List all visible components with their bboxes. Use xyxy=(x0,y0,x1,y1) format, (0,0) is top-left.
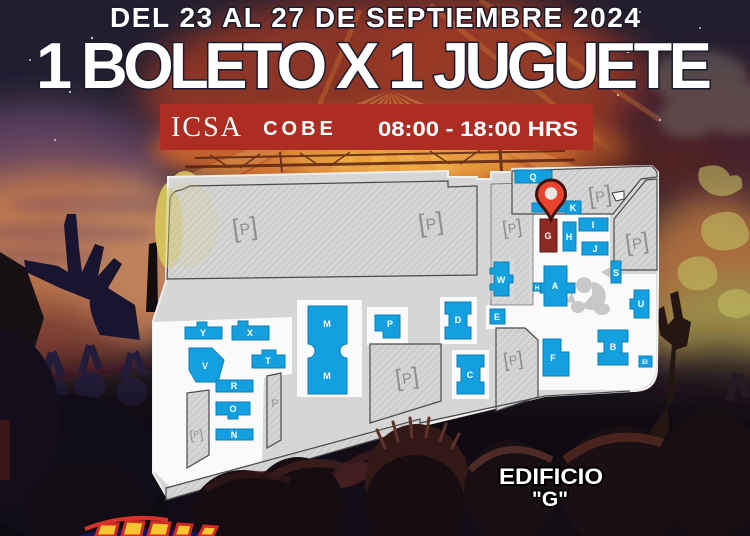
svg-text:N: N xyxy=(231,430,238,440)
svg-text:C: C xyxy=(467,370,474,380)
svg-text:COBE: COBE xyxy=(263,118,337,140)
svg-text:EI: EI xyxy=(642,360,648,366)
svg-text:T: T xyxy=(265,356,271,366)
svg-text:M: M xyxy=(323,371,331,381)
svg-text:E: E xyxy=(494,312,500,322)
svg-text:H: H xyxy=(535,286,539,292)
svg-text:B: B xyxy=(610,342,617,352)
svg-text:G: G xyxy=(544,231,551,241)
svg-text:P: P xyxy=(271,398,280,411)
svg-text:1 BOLETO X 1 JUGUETE: 1 BOLETO X 1 JUGUETE xyxy=(36,29,712,102)
svg-text:D: D xyxy=(455,315,462,325)
svg-text:O: O xyxy=(229,404,236,414)
svg-text:08:00 - 18:00 HRS: 08:00 - 18:00 HRS xyxy=(378,118,578,141)
svg-text:A: A xyxy=(552,281,559,291)
svg-text:I: I xyxy=(592,220,595,230)
svg-text:M: M xyxy=(323,319,331,329)
svg-text:K: K xyxy=(570,203,577,213)
svg-text:Y: Y xyxy=(200,328,206,338)
svg-text:"G": "G" xyxy=(532,488,568,511)
svg-text:W: W xyxy=(497,275,506,285)
svg-text:EDIFICIO: EDIFICIO xyxy=(499,464,603,489)
svg-text:P: P xyxy=(387,319,393,329)
svg-text:H: H xyxy=(566,232,573,242)
svg-text:J: J xyxy=(592,244,597,254)
svg-text:V: V xyxy=(202,361,208,371)
svg-text:U: U xyxy=(638,299,645,309)
svg-text:X: X xyxy=(247,328,253,338)
svg-text:S: S xyxy=(613,268,619,278)
svg-text:R: R xyxy=(231,381,238,391)
svg-text:ICSA: ICSA xyxy=(171,112,243,143)
svg-text:F: F xyxy=(550,353,556,363)
svg-text:Q: Q xyxy=(529,172,536,182)
